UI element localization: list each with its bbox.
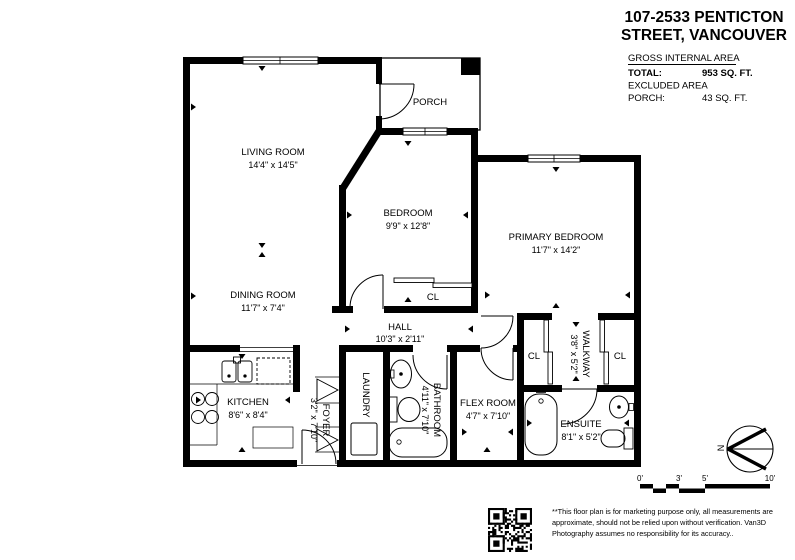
primary-bedroom-dims: 11'7" x 14'2"	[532, 245, 581, 255]
washer	[351, 423, 377, 455]
walkway-closet-left-slider	[544, 320, 549, 352]
ensuite-toilet	[601, 428, 633, 449]
floorplan: LIVING ROOM 14'4" x 14'5" DINING ROOM 11…	[183, 57, 641, 467]
ensuite-dims: 8'1" x 5'2"	[561, 432, 600, 442]
kitchen-label: KITCHEN	[227, 397, 269, 408]
walkway-closet-right-label: CL	[614, 351, 626, 362]
foyer-label: FOYER	[320, 404, 331, 437]
foyer-dims: 3'2" x 7'10"	[309, 398, 319, 442]
kitchen-sink	[222, 357, 252, 382]
walkway-closet-right-slider	[604, 352, 609, 384]
bedroom-closet-label: CL	[427, 292, 439, 303]
laundry-label: LAUNDRY	[360, 372, 371, 418]
footer: N 0' 3' 5' 10' **This floor plan is for …	[488, 426, 776, 552]
excluded-label: EXCLUDED AREA	[628, 81, 708, 92]
bedroom-dims: 9'9" x 12'8"	[386, 221, 430, 231]
porch-label: PORCH	[413, 97, 447, 108]
primary-bedroom-door	[481, 316, 513, 348]
porch-label: PORCH:	[628, 93, 665, 104]
compass-needle	[728, 429, 766, 449]
dining-room-dims: 11'7" x 7'4"	[241, 303, 285, 313]
bathroom-label: BATHROOM	[431, 383, 442, 437]
walkway-closet-right-slider	[600, 320, 605, 352]
kitchen-counter-island	[253, 427, 293, 448]
scale-label-10: 10'	[765, 474, 776, 483]
living-room-window	[243, 57, 318, 64]
disclaimer-line3: Photography assumes no responsibility fo…	[552, 529, 734, 538]
laundry-fixtures	[351, 423, 377, 455]
bedroom-closet-slider	[394, 278, 434, 283]
floorplan-svg: 107-2533 PENTICTON STREET, VANCOUVER GRO…	[0, 0, 795, 560]
porch-value: 43 SQ. FT.	[702, 93, 747, 104]
dimension-ticks	[191, 66, 630, 452]
ensuite-label: ENSUITE	[560, 419, 601, 430]
primary-bedroom-label: PRIMARY BEDROOM	[509, 232, 604, 243]
bedroom-label: BEDROOM	[383, 208, 432, 219]
disclaimer-line2: approximate, should not be relied upon w…	[552, 518, 766, 527]
kitchen-dims: 8'6" x 8'4"	[228, 410, 267, 420]
disclaimer: **This floor plan is for marketing purpo…	[552, 507, 773, 538]
dishwasher	[257, 358, 290, 384]
stove	[192, 393, 219, 424]
area-summary: GROSS INTERNAL AREA TOTAL: 953 SQ. FT. E…	[628, 53, 753, 104]
dining-room-label: DINING ROOM	[230, 290, 296, 301]
total-label: TOTAL:	[628, 68, 662, 79]
compass-needle	[728, 449, 766, 469]
bedroom-closet-slider	[433, 283, 472, 288]
flex-room-door	[481, 348, 513, 380]
bedroom-door	[350, 275, 383, 309]
porch-corner-block	[461, 58, 480, 75]
porch-outline	[380, 58, 480, 130]
bedroom-window	[403, 128, 447, 135]
qr-code	[488, 508, 532, 552]
bathroom-sink	[390, 360, 412, 388]
walkway-dims: 3'8" x 5'2"	[569, 334, 579, 373]
bathroom-toilet	[389, 397, 420, 422]
page-title-line1: 107-2533 PENTICTON	[624, 9, 783, 26]
header: 107-2533 PENTICTON STREET, VANCOUVER GRO…	[621, 9, 787, 104]
floorplan-page: 107-2533 PENTICTON STREET, VANCOUVER GRO…	[0, 0, 795, 560]
walkway-closet-left-slider	[548, 352, 553, 384]
ensuite-sink	[610, 396, 634, 418]
flex-room-dims: 4'7" x 7'10"	[466, 411, 510, 421]
area-heading: GROSS INTERNAL AREA	[628, 53, 740, 64]
disclaimer-line1: **This floor plan is for marketing purpo…	[552, 507, 773, 516]
scale-label-3: 3'	[676, 474, 682, 483]
compass-north-label: N	[716, 445, 726, 452]
flex-room-label: FLEX ROOM	[460, 398, 516, 409]
compass: N	[716, 426, 773, 472]
primary-bedroom-window	[528, 155, 580, 162]
scale-bar: 0' 3' 5' 10'	[637, 474, 776, 493]
bathroom-dims: 4'11" x 7'10"	[420, 386, 430, 435]
entry-door-porch	[379, 84, 414, 119]
scale-label-5: 5'	[702, 474, 708, 483]
hall-label: HALL	[388, 322, 412, 333]
hall-dims: 10'3" x 2'11"	[376, 334, 425, 344]
living-room-dims: 14'4" x 14'5"	[248, 160, 297, 170]
scale-bar-segments	[640, 484, 770, 493]
walkway-label: WALKWAY	[580, 330, 591, 378]
walkway-closet-left-label: CL	[528, 351, 540, 362]
total-value: 953 SQ. FT.	[702, 68, 753, 79]
page-title-line2: STREET, VANCOUVER	[621, 27, 787, 44]
scale-label-0: 0'	[637, 474, 643, 483]
living-room-label: LIVING ROOM	[241, 147, 304, 158]
